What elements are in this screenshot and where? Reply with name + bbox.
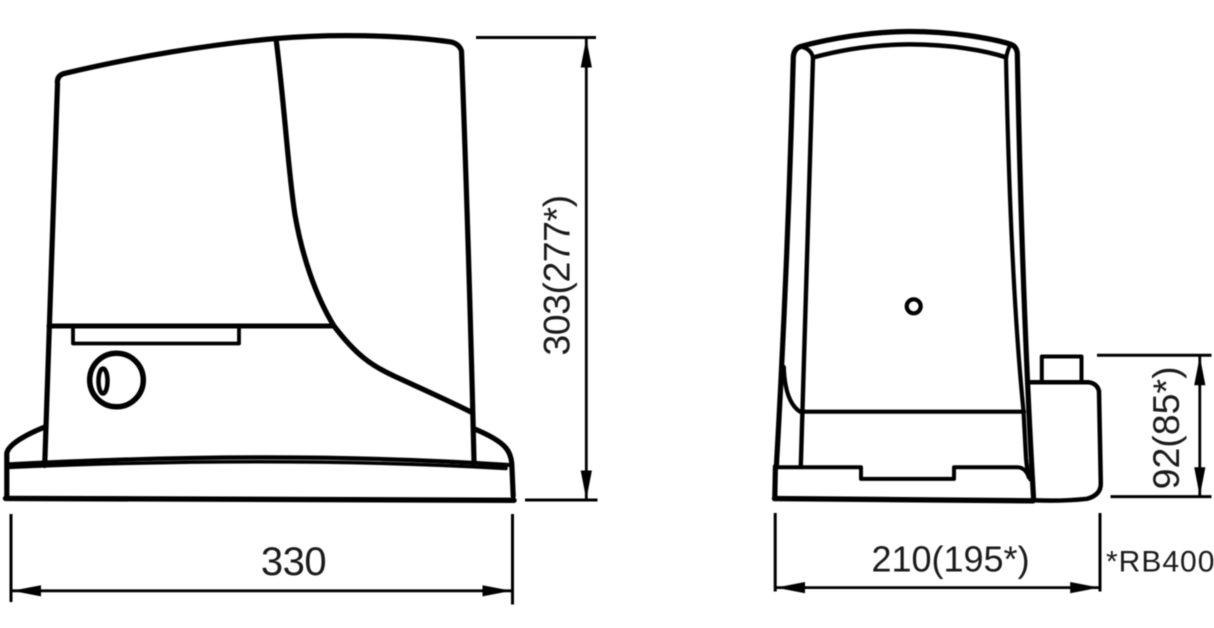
svg-text:*RB400: *RB400 <box>1106 545 1214 578</box>
svg-text:303(277*): 303(277*) <box>536 195 578 355</box>
svg-text:92(85*): 92(85*) <box>1145 366 1187 489</box>
svg-text:210(195*): 210(195*) <box>871 539 1029 580</box>
svg-text:330: 330 <box>261 540 326 584</box>
